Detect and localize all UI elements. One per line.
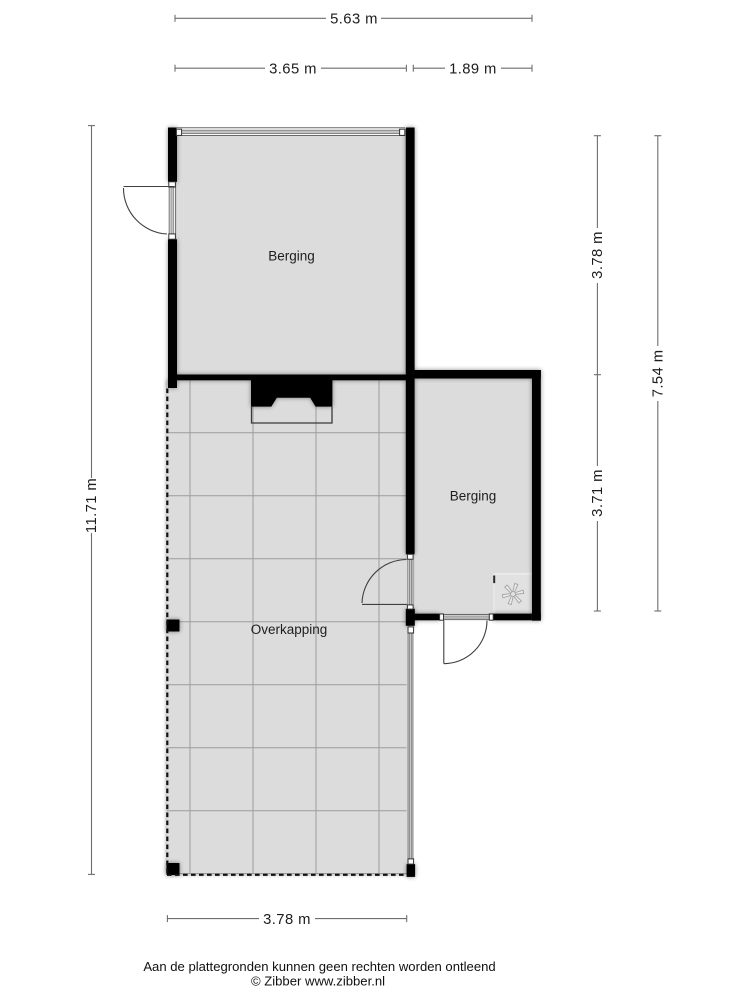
svg-text:3.78 m: 3.78 m — [263, 912, 311, 928]
svg-text:3.71 m: 3.71 m — [590, 469, 606, 517]
svg-text:Berging: Berging — [450, 489, 497, 504]
svg-text:3.78 m: 3.78 m — [590, 231, 606, 279]
svg-text:Overkapping: Overkapping — [251, 622, 328, 637]
svg-text:Aan de plattegronden kunnen ge: Aan de plattegronden kunnen geen rechten… — [143, 959, 495, 974]
svg-text:© Zibber www.zibber.nl: © Zibber www.zibber.nl — [251, 974, 385, 989]
svg-text:5.63 m: 5.63 m — [330, 12, 378, 28]
svg-text:1.89 m: 1.89 m — [449, 62, 497, 78]
svg-text:Berging: Berging — [268, 249, 315, 264]
svg-text:11.71 m: 11.71 m — [84, 478, 100, 533]
svg-text:7.54 m: 7.54 m — [651, 350, 667, 398]
svg-text:3.65 m: 3.65 m — [269, 62, 317, 78]
